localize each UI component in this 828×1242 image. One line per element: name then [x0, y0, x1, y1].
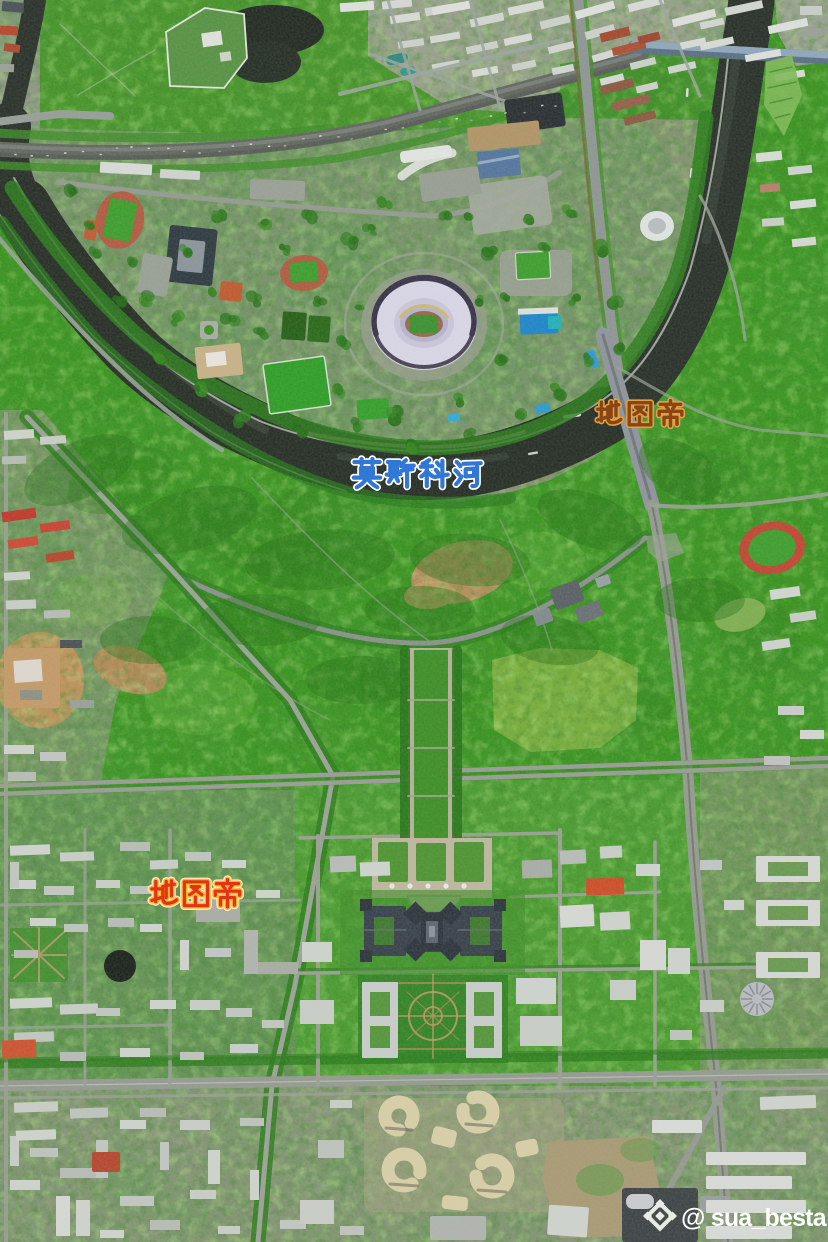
svg-text:@ sua_besta: @ sua_besta — [681, 1204, 828, 1232]
